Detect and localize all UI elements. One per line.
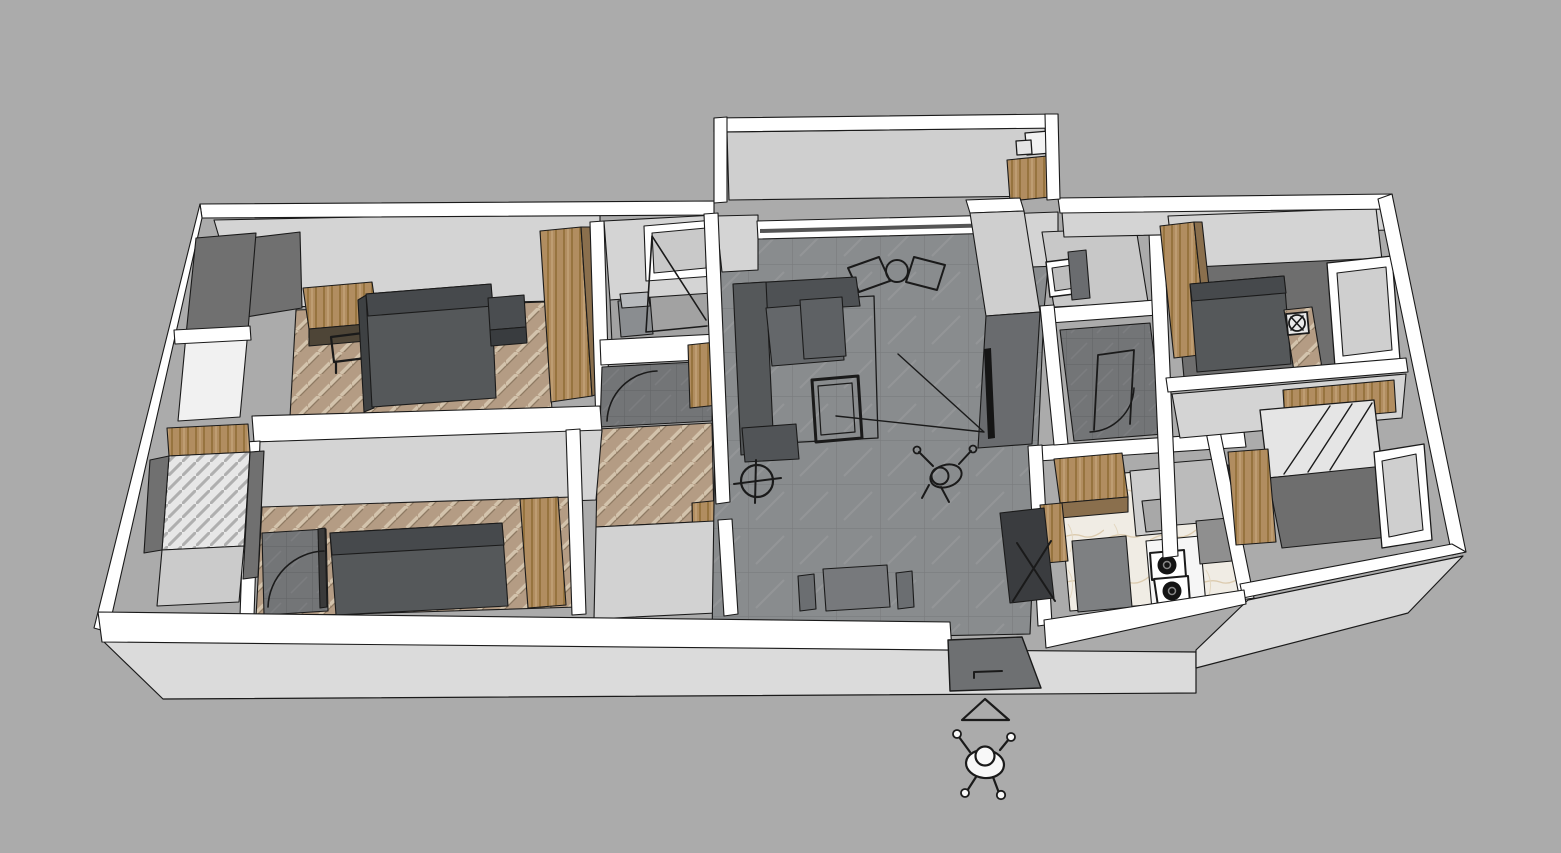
balcony-left-wall-band [714,117,727,203]
top-wall-band-left [200,201,714,218]
corridor-floor-lower [594,521,716,619]
top-wall-band-right [1058,194,1394,213]
bedroom1-nightstand-lower [490,327,527,346]
stove-burner2 [1163,582,1182,601]
left-niche-wall-face [186,233,256,335]
toilet-tank [620,292,650,308]
pantry-glass-panel [1068,250,1090,300]
dining-table [823,565,890,611]
balcony-right-wall-band [1045,114,1060,200]
bedroom2-door-leaf [318,528,327,608]
bathroom2-floor [1060,323,1164,441]
figure2-hand-right [1007,733,1015,741]
kitchen-cabinet-wood-top [1054,453,1128,503]
figure2-foot-right [997,791,1005,799]
figure2-foot-left [961,789,969,797]
dining-chair-left [798,574,816,611]
balcony-ac-box2 [1016,140,1032,155]
tv-wall-top-band [966,198,1024,213]
bedroom2-wardrobe [520,497,566,608]
sofa-chaise [800,297,846,359]
balcony-floor [727,128,1047,200]
left-balcony-floor-lower [157,546,244,606]
left-balcony-shelf-wood [167,424,250,456]
bedroom4-wardrobe [1228,449,1276,545]
figure2-head [976,747,995,766]
dining-chair-right [896,571,914,609]
bedroom4-window-glass [1382,454,1423,537]
livingroom-back-face-left [716,215,758,272]
bedroom4-mattress [1260,400,1382,478]
kitchen-counter-dark [1072,536,1132,612]
floorplan-svg [0,0,1561,853]
floorplan-3d-render: 3D axonometric architectural render of a… [0,0,1561,853]
bedroom3-window-glass [1337,267,1392,356]
balcony-cabinet-wood [1007,156,1050,201]
stove-burner1 [1158,556,1177,575]
sofa-ottoman [742,424,799,462]
bedroom1-nightstand [488,295,526,330]
figure2-hand-left [953,730,961,738]
bathroom1-window-glass [652,228,706,273]
left-balcony-plank-floor [162,452,250,550]
